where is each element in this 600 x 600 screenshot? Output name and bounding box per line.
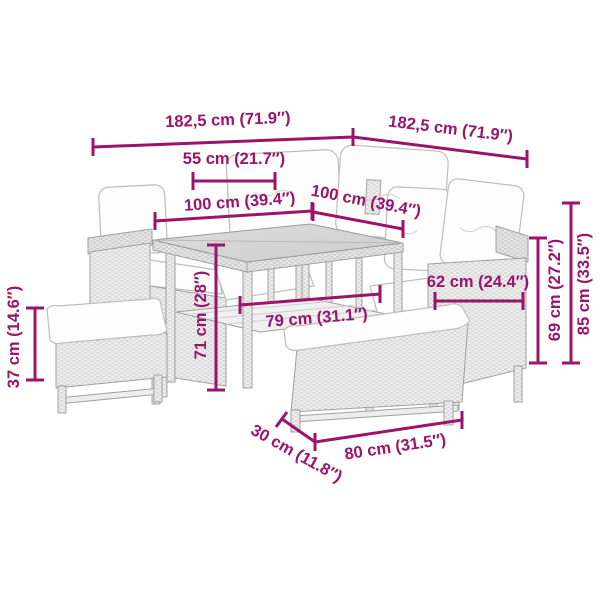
dimension-label: 71 cm (28″) — [192, 271, 210, 360]
dimension-label: 62 cm (24.4″) — [427, 273, 529, 291]
dimension-label: 182,5 cm (71.9″) — [165, 109, 291, 131]
table-baluster — [356, 258, 362, 308]
dimension-label: 69 cm (27.2″) — [546, 239, 564, 341]
dimension-armrest-height: 69 cm (27.2″) — [529, 238, 564, 363]
bench-leg — [58, 386, 66, 413]
sofa-leg — [514, 366, 522, 402]
left-bench — [47, 298, 167, 413]
dimension-label: 37 cm (14.6″) — [5, 286, 23, 388]
dimension-label: 85 cm (33.5″) — [575, 233, 593, 335]
dimension-stool-height: 37 cm (14.6″) — [5, 286, 44, 388]
back-cushion — [439, 178, 525, 273]
dimension-label: 55 cm (21.7″) — [183, 150, 285, 168]
bench-stretcher — [58, 388, 160, 404]
bench-leg — [154, 375, 162, 402]
dimension-label: 182,5 cm (71.9″) — [387, 112, 514, 145]
dimension-total-width-left: 182,5 cm (71.9″) — [93, 109, 353, 156]
table-leg-side — [243, 268, 252, 388]
dimension-back-height: 85 cm (33.5″) — [562, 203, 593, 363]
furniture-dimensions-diagram: 182,5 cm (71.9″) 182,5 cm (71.9″) 55 cm … — [0, 0, 600, 600]
dimensions-diagram-page: 182,5 cm (71.9″) 182,5 cm (71.9″) 55 cm … — [0, 0, 600, 600]
